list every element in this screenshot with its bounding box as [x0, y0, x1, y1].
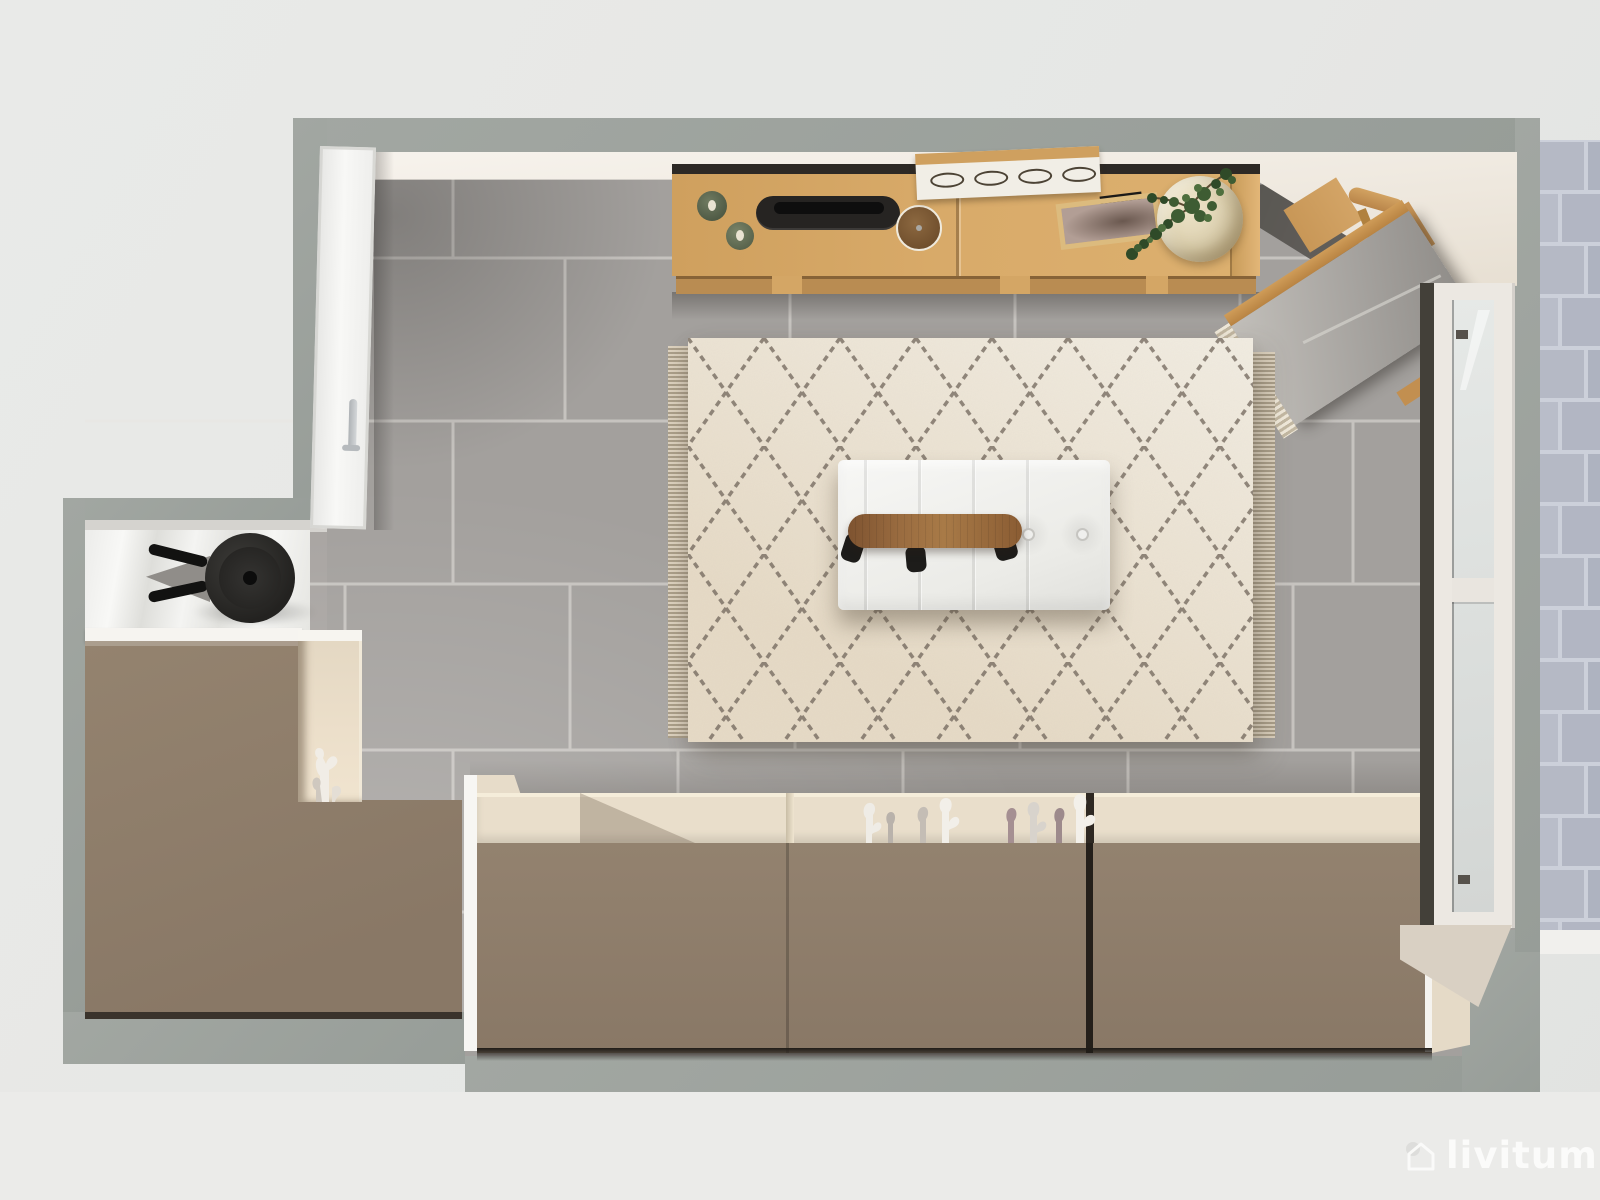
- cabinet-front-gap: [1086, 843, 1093, 1053]
- desk-base-shadow: [85, 1012, 462, 1019]
- panel-oval-4: [1062, 166, 1097, 182]
- window-mid-rail: [1452, 578, 1494, 602]
- watermark-text: livitum: [1446, 1134, 1598, 1177]
- wall-bottom-left: [63, 1012, 465, 1064]
- white-door: [310, 146, 376, 529]
- wall-right: [1515, 118, 1540, 952]
- window-lock-bottom: [1458, 875, 1470, 884]
- white-counter-edge: [85, 628, 302, 642]
- plant-foliage: [1108, 158, 1258, 270]
- sideboard-foot-3: [1146, 276, 1168, 294]
- panel-oval-2: [974, 170, 1009, 186]
- bench-grain: [848, 514, 1022, 548]
- wall-bottom: [465, 1056, 1465, 1092]
- panel-oval-1: [930, 172, 965, 188]
- door-handle: [348, 399, 357, 449]
- wall-step: [63, 498, 327, 520]
- wall-left-lower: [63, 498, 85, 1018]
- sage-dish-2: [726, 222, 754, 250]
- shelf-diagonal-shadow: [580, 793, 695, 843]
- ceramic-sculpture-group-4: [1046, 792, 1110, 844]
- render-canvas: livitum: [0, 0, 1600, 1200]
- french-window-frame: [1434, 283, 1515, 928]
- sage-dish-2-center: [736, 230, 744, 241]
- cream-cubby: [298, 630, 362, 802]
- rug-left-fringe: [668, 346, 689, 738]
- sage-dish-1-center: [708, 200, 716, 211]
- sage-dish-1: [697, 191, 727, 221]
- window-glass-streak: [1460, 310, 1490, 390]
- cabinet-bottom-shadow: [477, 1048, 1432, 1061]
- ottoman-tuft-ring-1: [1022, 528, 1035, 541]
- tray-handle: [774, 202, 884, 214]
- house-logo-icon: [1402, 1138, 1438, 1174]
- door-floor-shadow: [374, 152, 394, 530]
- wall-top: [293, 118, 1540, 152]
- sideboard-floor-shadow: [672, 292, 1260, 320]
- desk-top-highlight: [85, 641, 300, 646]
- window-dark-gap: [1420, 283, 1434, 928]
- sideboard-foot-1: [772, 276, 802, 294]
- outside-bottom-ground: [0, 1092, 1600, 1200]
- bench-leg-2: [905, 545, 927, 573]
- sideboard-base: [676, 276, 1256, 294]
- cubby-top-edge: [298, 630, 362, 641]
- slatted-panel: [915, 146, 1101, 200]
- rug-right-fringe: [1253, 352, 1275, 738]
- walnut-bench: [848, 514, 1022, 548]
- cabinet-front-seam: [786, 843, 789, 1053]
- ceramic-sculpture-group-1: [852, 798, 912, 844]
- watermark-logo: livitum: [1402, 1134, 1598, 1177]
- cabinet-left-white-edge: [464, 775, 477, 1051]
- black-table-fan: [205, 533, 295, 623]
- shelf-divider: [786, 793, 794, 843]
- ceramic-sculpture-group-2: [908, 796, 972, 844]
- door-handle-base: [342, 445, 360, 451]
- cabinet-fronts: [477, 843, 1432, 1053]
- window-glass: [1452, 300, 1494, 912]
- ottoman-tuft-ring-2: [1076, 528, 1089, 541]
- clock-center-dot: [916, 225, 922, 231]
- window-lock-top: [1456, 330, 1468, 339]
- walnut-clock: [896, 205, 942, 251]
- black-tray: [756, 196, 900, 230]
- panel-oval-3: [1018, 168, 1053, 184]
- fan-hub: [243, 571, 257, 585]
- coral-sculpture: [302, 718, 356, 802]
- sideboard-foot-2: [1000, 276, 1030, 294]
